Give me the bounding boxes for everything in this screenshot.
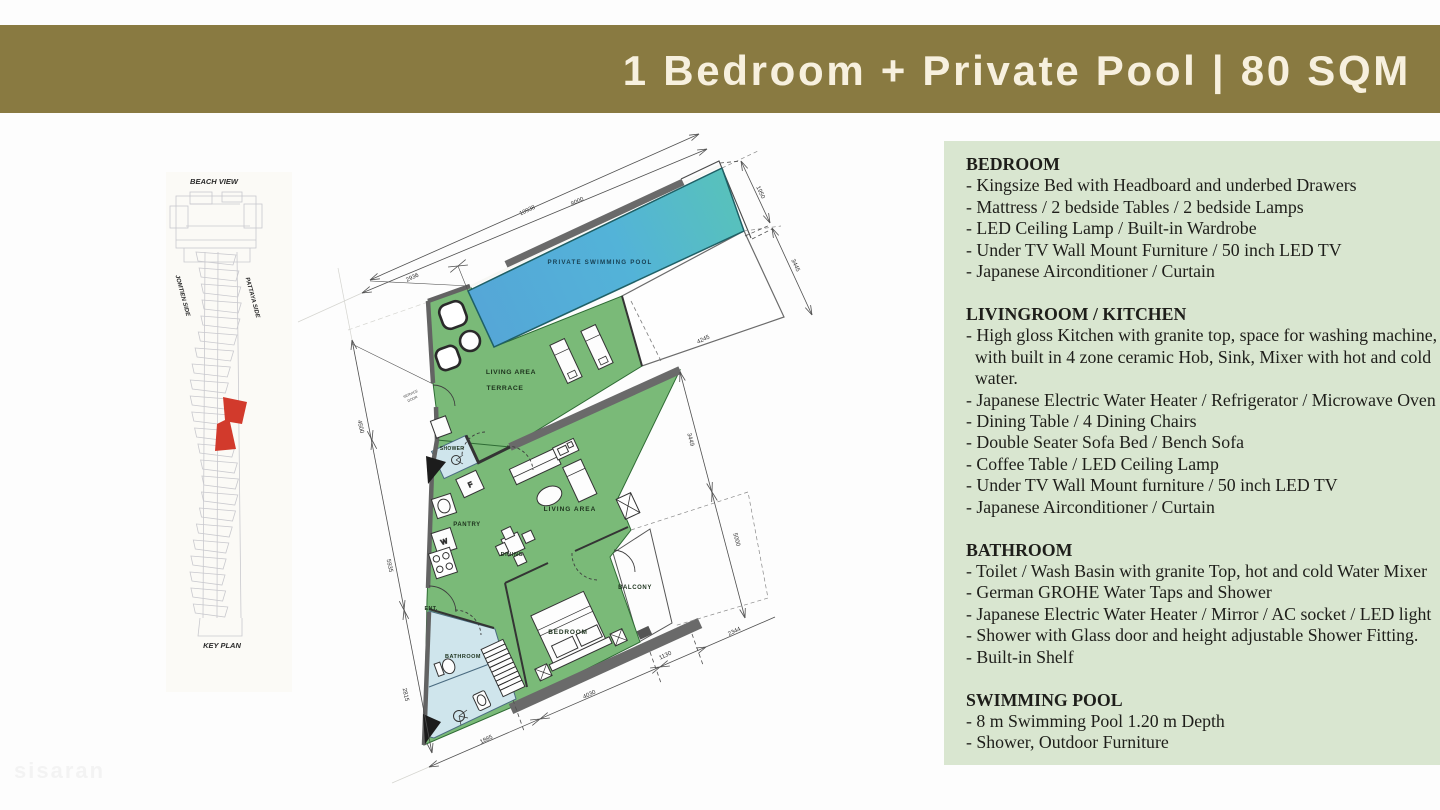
svg-text:PRIVATE SWIMMING POOL: PRIVATE SWIMMING POOL xyxy=(547,259,652,266)
svg-text:LIVING AREA: LIVING AREA xyxy=(486,369,536,376)
svg-text:5000: 5000 xyxy=(731,533,740,548)
svg-text:KEY PLAN: KEY PLAN xyxy=(203,641,241,650)
svg-text:BEDROOM: BEDROOM xyxy=(548,629,588,636)
svg-text:TERRACE: TERRACE xyxy=(486,385,523,392)
svg-text:BEACH VIEW: BEACH VIEW xyxy=(190,177,239,186)
svg-text:BALCONY: BALCONY xyxy=(618,585,652,591)
svg-text:SHOWER: SHOWER xyxy=(440,446,464,452)
svg-text:3449: 3449 xyxy=(685,433,694,448)
svg-text:LIVING AREA: LIVING AREA xyxy=(544,506,597,513)
svg-text:2344: 2344 xyxy=(727,626,742,637)
svg-text:PANTRY: PANTRY xyxy=(453,522,481,528)
svg-text:DINING: DINING xyxy=(501,552,524,558)
svg-text:5935: 5935 xyxy=(385,559,394,574)
svg-text:4500: 4500 xyxy=(356,420,365,435)
svg-text:1885: 1885 xyxy=(479,734,494,745)
svg-text:BATHROOM: BATHROOM xyxy=(445,654,481,660)
svg-text:8000: 8000 xyxy=(570,196,585,207)
svg-text:2815: 2815 xyxy=(401,688,410,703)
svg-text:ENT.: ENT. xyxy=(424,606,437,612)
svg-text:10938: 10938 xyxy=(519,205,537,218)
svg-text:1130: 1130 xyxy=(658,650,673,661)
svg-text:4030: 4030 xyxy=(582,689,597,700)
svg-text:3445: 3445 xyxy=(789,258,800,273)
